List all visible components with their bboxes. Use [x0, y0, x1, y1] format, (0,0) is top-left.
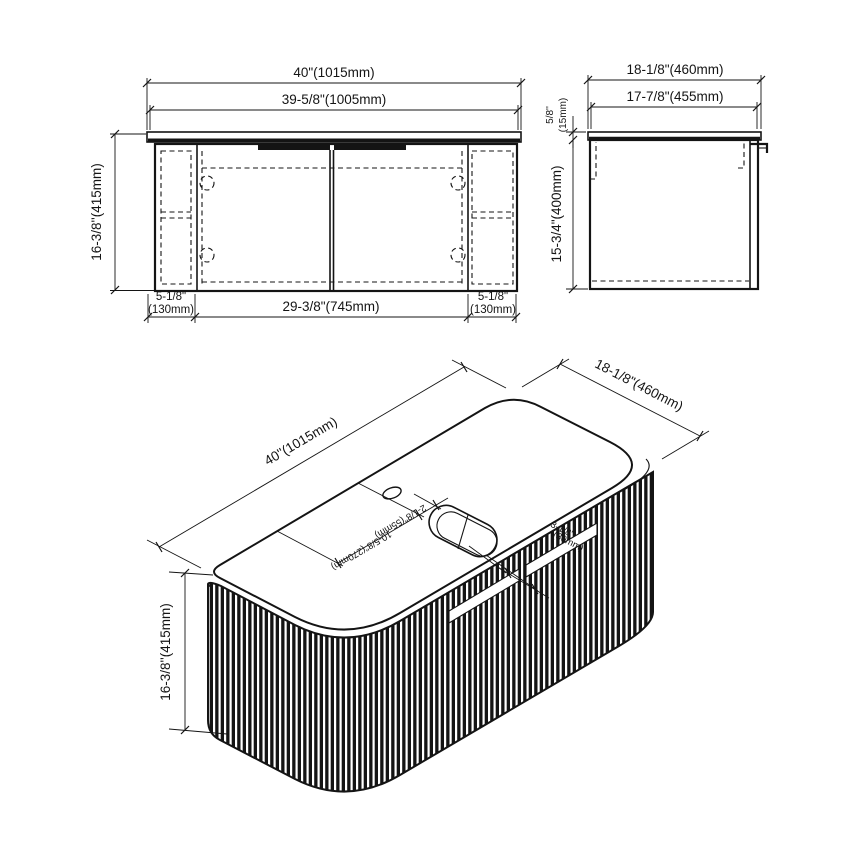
front-center-width-label: 29-3/8"(745mm)	[282, 299, 379, 314]
side-height-dim: 15-3/4"(400mm)	[549, 140, 588, 293]
iso-width-label: 40''(1015mm)	[262, 414, 340, 468]
front-right-section-label-in: 5-1/8"	[478, 291, 508, 303]
front-height-label: 16-3/8''(415mm)	[89, 163, 104, 260]
side-height-label: 15-3/4"(400mm)	[549, 165, 564, 262]
front-cabinet-body	[155, 144, 517, 291]
front-countertop	[147, 132, 521, 142]
side-depth-outer-dim: 18-1/8"(460mm)	[584, 62, 765, 84]
side-counter-thickness-label-mm: (15mm)	[558, 98, 569, 132]
front-right-section-label-mm: (130mm)	[470, 304, 516, 316]
front-width-inner-label: 39-5/8"(1005mm)	[282, 92, 387, 107]
front-width-outer-dim: 40"(1015mm)	[143, 65, 525, 87]
side-depth-inner-dim: 17-7/8"(455mm)	[587, 89, 761, 111]
front-width-inner-dim: 39-5/8"(1005mm)	[146, 92, 522, 114]
front-height-dim: 16-3/8''(415mm)	[89, 130, 154, 294]
side-depth-inner-label: 17-7/8"(455mm)	[626, 89, 723, 104]
side-counter-thickness-label-in: 5/8''	[545, 106, 556, 124]
side-countertop	[588, 132, 761, 140]
iso-depth-label: 18-1/8"(460mm)	[592, 356, 685, 414]
front-bottom-dims: 5-1/8" (130mm) 29-3/8"(745mm) 5-1/8" (13…	[144, 291, 520, 323]
front-left-section-label-in: 5-1/8"	[156, 291, 186, 303]
side-view: 18-1/8"(460mm) 17-7/8"(455mm)	[545, 62, 767, 293]
side-depth-outer-label: 18-1/8"(460mm)	[626, 62, 723, 77]
vanity-dimension-drawing: 40"(1015mm) 39-5/8"(1005mm)	[0, 0, 860, 860]
front-width-outer-label: 40"(1015mm)	[293, 65, 374, 80]
front-view: 40"(1015mm) 39-5/8"(1005mm)	[89, 65, 525, 323]
iso-view: 40''(1015mm) 18-1/8"(460mm) 16-3/8''(415…	[147, 356, 709, 791]
side-counter-thickness-dim: 5/8'' (15mm)	[545, 98, 586, 148]
technical-drawing-page: 40"(1015mm) 39-5/8"(1005mm)	[0, 0, 860, 860]
iso-height-label: 16-3/8''(415mm)	[158, 603, 173, 700]
front-left-section-label-mm: (130mm)	[148, 304, 194, 316]
side-cabinet-body	[590, 140, 758, 289]
